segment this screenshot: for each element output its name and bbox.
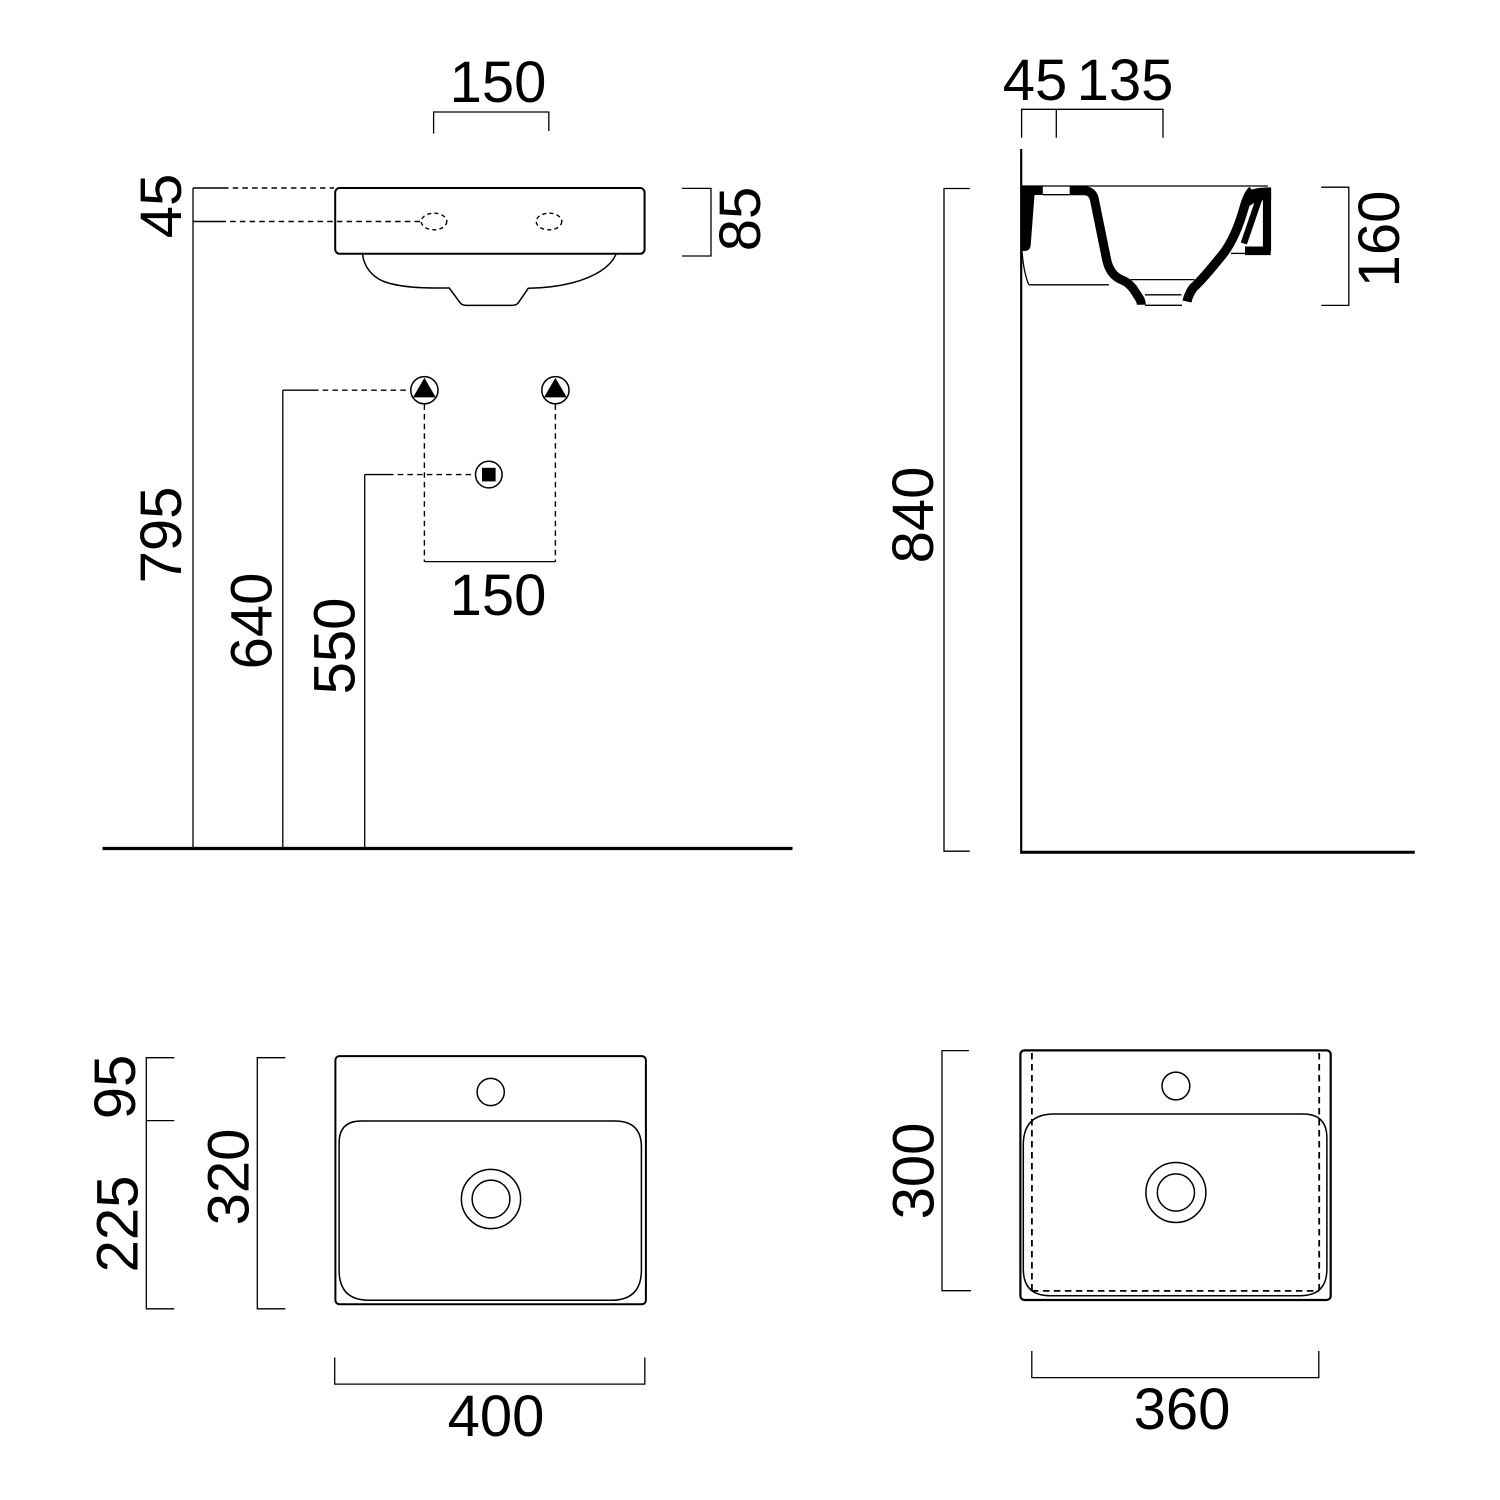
svg-text:225: 225 bbox=[85, 1176, 150, 1273]
svg-text:135: 135 bbox=[1077, 48, 1174, 113]
svg-text:95: 95 bbox=[83, 1055, 148, 1120]
svg-text:320: 320 bbox=[197, 1129, 262, 1226]
svg-text:160: 160 bbox=[1347, 191, 1412, 288]
svg-text:45: 45 bbox=[129, 174, 194, 239]
svg-text:840: 840 bbox=[881, 467, 946, 564]
svg-text:400: 400 bbox=[448, 1384, 545, 1449]
svg-text:85: 85 bbox=[708, 187, 773, 252]
svg-text:360: 360 bbox=[1134, 1377, 1231, 1442]
svg-text:300: 300 bbox=[882, 1123, 947, 1220]
svg-text:150: 150 bbox=[450, 563, 547, 628]
svg-text:45: 45 bbox=[1003, 48, 1068, 113]
svg-text:150: 150 bbox=[450, 50, 547, 115]
svg-text:795: 795 bbox=[129, 487, 194, 584]
svg-text:550: 550 bbox=[303, 598, 368, 695]
svg-text:640: 640 bbox=[220, 573, 285, 670]
